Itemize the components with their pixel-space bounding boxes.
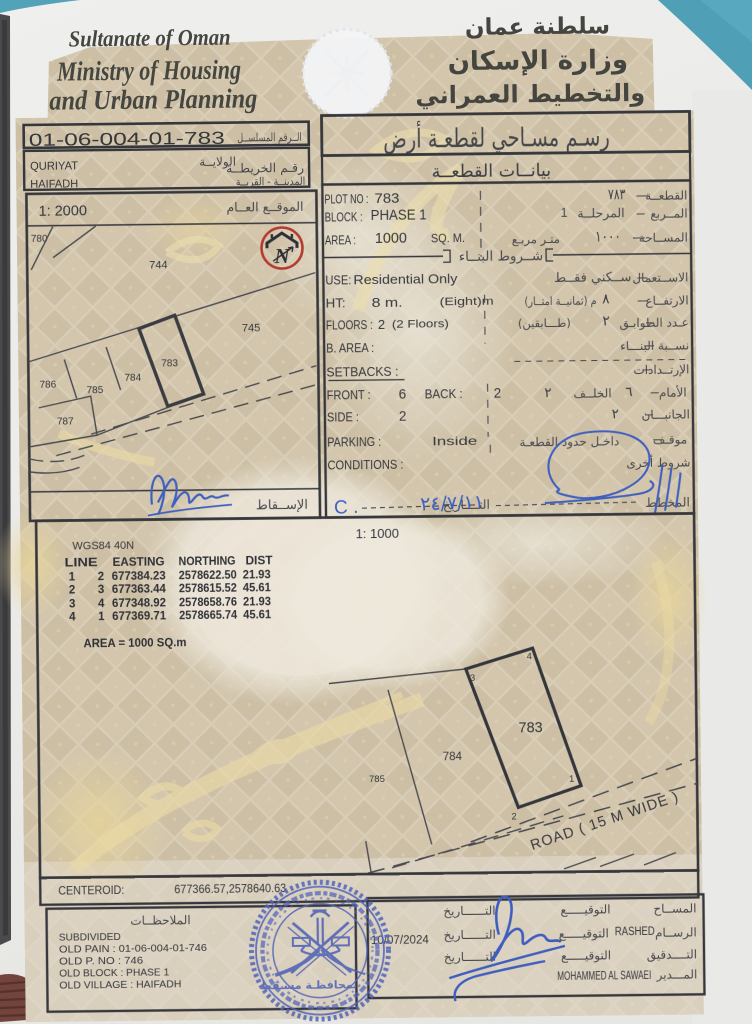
svg-text:EASTING: EASTING bbox=[112, 556, 164, 569]
svg-text:PARKING :: PARKING : bbox=[327, 434, 381, 450]
svg-text:784: 784 bbox=[443, 751, 463, 763]
svg-text:2: 2 bbox=[98, 571, 105, 583]
svg-text:3: 3 bbox=[98, 584, 105, 596]
svg-text:OLD PAIN : 01-06-004-01-746: OLD PAIN : 01-06-004-01-746 bbox=[59, 942, 207, 956]
svg-text:AREA :: AREA : bbox=[325, 232, 356, 247]
svg-text:2578615.52: 2578615.52 bbox=[179, 583, 237, 596]
svg-text:Ministry of Housing: Ministry of Housing bbox=[56, 54, 241, 87]
svg-text:2578665.74: 2578665.74 bbox=[179, 610, 238, 623]
svg-text:1: 2000: 1: 2000 bbox=[38, 203, 87, 220]
svg-text:784: 784 bbox=[124, 373, 141, 384]
svg-text:787: 787 bbox=[57, 416, 74, 427]
svg-text:783: 783 bbox=[518, 720, 542, 736]
svg-text:4: 4 bbox=[527, 651, 532, 662]
svg-text:(Eight)m: (Eight)m bbox=[440, 296, 494, 309]
svg-text:Inside: Inside bbox=[432, 434, 478, 449]
svg-text:2: 2 bbox=[378, 317, 385, 332]
svg-text:SUBDIVIDED: SUBDIVIDED bbox=[59, 931, 122, 944]
svg-text:744: 744 bbox=[149, 259, 167, 271]
svg-text:OLD P. NO : 746: OLD P. NO : 746 bbox=[59, 955, 143, 968]
svg-text:BLOCK :: BLOCK : bbox=[325, 209, 363, 224]
svg-text:2: 2 bbox=[399, 409, 407, 424]
svg-text:2: 2 bbox=[494, 386, 502, 401]
svg-text:OLD VILLAGE : HAIFADH: OLD VILLAGE : HAIFADH bbox=[59, 978, 181, 991]
svg-text:QURIYAT: QURIYAT bbox=[30, 160, 78, 173]
svg-text:10/07/2024: 10/07/2024 bbox=[371, 934, 430, 947]
svg-text:CENTEROID:: CENTEROID: bbox=[58, 885, 124, 898]
svg-text:LINE: LINE bbox=[64, 557, 98, 569]
svg-text:01-06-004-01-783: 01-06-004-01-783 bbox=[29, 128, 225, 150]
svg-text:745: 745 bbox=[242, 322, 260, 334]
svg-text:1: 1 bbox=[98, 611, 105, 623]
svg-text:MOHAMMED AL SAWAEI: MOHAMMED AL SAWAEI bbox=[557, 970, 651, 983]
svg-text:8 m.: 8 m. bbox=[372, 295, 403, 310]
svg-text:HT:: HT: bbox=[326, 295, 346, 310]
svg-text:NORTHING: NORTHING bbox=[178, 556, 235, 569]
svg-text:SETBACKS :: SETBACKS : bbox=[326, 364, 398, 380]
svg-text:and Urban Planning: and Urban Planning bbox=[49, 82, 258, 115]
svg-text:CONDITIONS :: CONDITIONS : bbox=[327, 457, 403, 473]
svg-text:PLOT NO :: PLOT NO : bbox=[324, 191, 368, 206]
svg-text:USE:: USE: bbox=[325, 272, 351, 287]
svg-text:780: 780 bbox=[31, 234, 48, 245]
svg-text:BACK :: BACK : bbox=[425, 386, 463, 401]
svg-text:677363.44: 677363.44 bbox=[112, 583, 167, 596]
svg-text:2578658.76: 2578658.76 bbox=[179, 597, 237, 610]
svg-text:FLOORS :: FLOORS : bbox=[326, 317, 373, 333]
svg-text:HAIFADH: HAIFADH bbox=[30, 178, 78, 191]
svg-text:B. AREA :: B. AREA : bbox=[326, 340, 374, 356]
svg-text:3: 3 bbox=[69, 598, 76, 610]
svg-text:PHASE 1: PHASE 1 bbox=[371, 207, 427, 224]
svg-text:785: 785 bbox=[369, 774, 385, 785]
svg-text:783: 783 bbox=[161, 358, 178, 369]
svg-text:Residential Only: Residential Only bbox=[353, 271, 458, 287]
svg-text:(2 Floors): (2 Floors) bbox=[392, 318, 449, 331]
svg-text:FRONT :: FRONT : bbox=[327, 387, 371, 402]
svg-text:RASHED: RASHED bbox=[615, 926, 655, 938]
svg-text:4: 4 bbox=[98, 598, 105, 610]
svg-text:677384.23: 677384.23 bbox=[112, 570, 166, 583]
svg-text:677369.71: 677369.71 bbox=[112, 610, 167, 623]
svg-text:1: 1000: 1: 1000 bbox=[355, 526, 399, 541]
svg-text:785: 785 bbox=[87, 385, 104, 396]
svg-text:21.93: 21.93 bbox=[243, 596, 271, 608]
svg-text:1: 1 bbox=[69, 571, 76, 583]
svg-text:4: 4 bbox=[69, 611, 76, 623]
svg-text:45.61: 45.61 bbox=[243, 609, 272, 621]
svg-text:786: 786 bbox=[39, 380, 56, 391]
svg-text:C .: C . bbox=[334, 497, 359, 519]
svg-text:677348.92: 677348.92 bbox=[112, 597, 166, 610]
svg-text:SIDE :: SIDE : bbox=[327, 409, 359, 424]
svg-text:21.93: 21.93 bbox=[243, 569, 271, 581]
svg-text:3: 3 bbox=[470, 673, 475, 684]
svg-text:SQ. M.: SQ. M. bbox=[431, 231, 465, 245]
svg-text:2578622.50: 2578622.50 bbox=[179, 570, 237, 583]
svg-text:WGS84 40N: WGS84 40N bbox=[72, 540, 134, 553]
svg-text:783: 783 bbox=[374, 190, 399, 206]
svg-text:AREA = 1000 SQ.m: AREA = 1000 SQ.m bbox=[83, 637, 186, 650]
svg-text:1000: 1000 bbox=[375, 231, 407, 247]
svg-text:6: 6 bbox=[399, 387, 407, 402]
svg-text:2: 2 bbox=[511, 811, 516, 822]
svg-text:677366.57,2578640.63: 677366.57,2578640.63 bbox=[174, 883, 286, 896]
svg-text:45.61: 45.61 bbox=[243, 582, 272, 594]
svg-text:1: 1 bbox=[569, 774, 574, 785]
svg-text:DIST: DIST bbox=[245, 555, 272, 567]
svg-text:1: 1 bbox=[561, 206, 568, 220]
svg-text:2: 2 bbox=[69, 584, 76, 596]
svg-text:Sultanate of Oman: Sultanate of Oman bbox=[68, 25, 230, 52]
